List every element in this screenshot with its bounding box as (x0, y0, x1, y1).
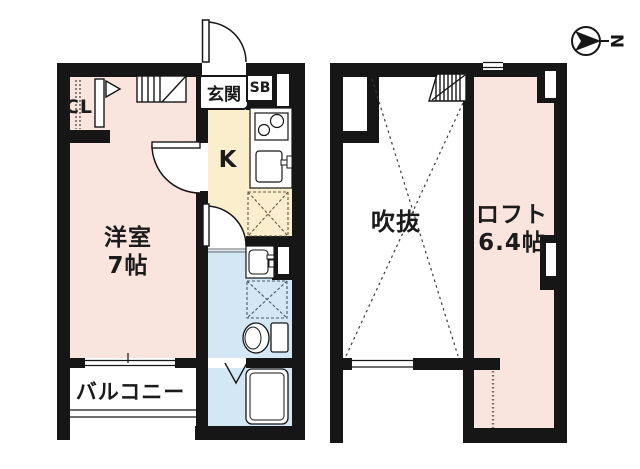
entrance-label-box: 玄関 (199, 75, 249, 110)
wall (292, 63, 305, 440)
kitchen-label: K (206, 146, 250, 174)
bathroom-floor (208, 368, 292, 426)
wall (57, 63, 202, 77)
floor-plan-canvas: N 玄関 SB CL K 洋室 7帖 バルコニー 吹抜 ロフト 6.4帖 (0, 0, 640, 469)
loft-size-label: 6.4帖 (452, 226, 572, 254)
staircase-icon-2f (429, 74, 466, 101)
compass-icon: N (572, 27, 626, 55)
entrance-label: 玄関 (207, 80, 241, 105)
wall (57, 130, 110, 143)
entrance-door-icon (203, 20, 247, 62)
wall (330, 358, 352, 370)
shoe-box-label-box: SB (246, 74, 274, 102)
western-room-size-label: 7帖 (68, 249, 188, 277)
shoe-box-label: SB (250, 80, 271, 96)
wall (330, 63, 343, 443)
window-slot (545, 71, 556, 98)
wall (57, 358, 85, 368)
window-slot (278, 247, 289, 274)
wall (413, 358, 500, 370)
balcony-label: バルコニー (63, 377, 198, 405)
wall (463, 77, 474, 443)
wall (246, 358, 292, 368)
wall (463, 428, 567, 443)
loft-label: ロフト (452, 198, 572, 226)
wall (195, 426, 305, 440)
balcony-railing (64, 410, 196, 417)
compass-north-label: N (606, 34, 626, 48)
wall (196, 191, 208, 358)
void-label: 吹抜 (336, 204, 456, 234)
closet-label: CL (60, 92, 98, 122)
wall (175, 358, 196, 368)
void-window-icon (352, 358, 413, 370)
wall-niche (343, 77, 367, 131)
western-room-label: 洋室 (68, 221, 188, 249)
window-slot (277, 74, 289, 106)
